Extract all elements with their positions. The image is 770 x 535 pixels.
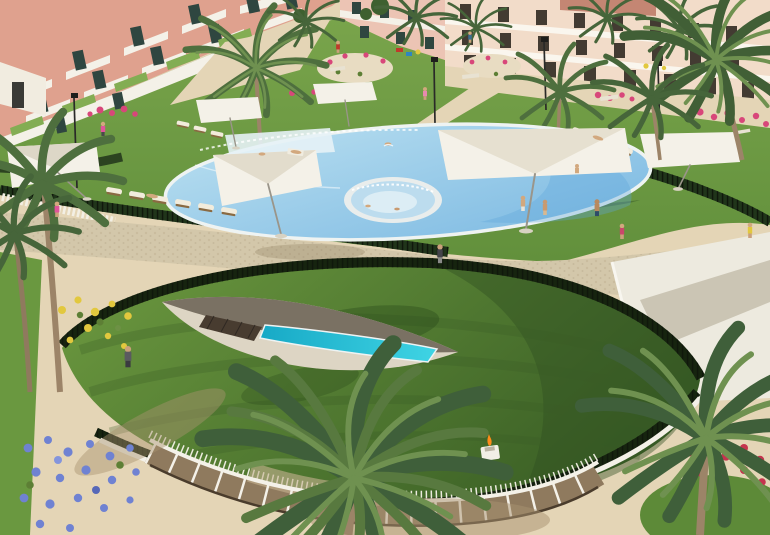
person-garden-3 bbox=[336, 41, 340, 53]
person-garden-4 bbox=[423, 87, 427, 100]
scene-svg bbox=[0, 0, 770, 535]
person-poolside-2 bbox=[543, 200, 548, 215]
sand-circle-1 bbox=[317, 53, 393, 83]
person-poolside-4 bbox=[620, 224, 625, 239]
kids-pool-swimmer-1 bbox=[365, 205, 371, 208]
person-garden-2 bbox=[101, 122, 105, 136]
person-garden-5 bbox=[468, 31, 472, 42]
person-garden-left bbox=[55, 202, 60, 217]
person-right-edge bbox=[748, 223, 753, 238]
kids-pool-swimmer-2 bbox=[394, 208, 400, 211]
entrance-gate bbox=[12, 82, 24, 108]
person-plaza bbox=[125, 346, 132, 367]
person-poolside-3 bbox=[594, 199, 599, 216]
person-poolside-1 bbox=[521, 196, 526, 211]
walkway-palm-shadow bbox=[255, 244, 365, 260]
render-canvas bbox=[0, 0, 770, 535]
person-walkway bbox=[437, 244, 443, 263]
person-pool-edge bbox=[575, 164, 579, 173]
kids-pool-center bbox=[363, 191, 417, 213]
swimmer-1 bbox=[259, 152, 266, 155]
